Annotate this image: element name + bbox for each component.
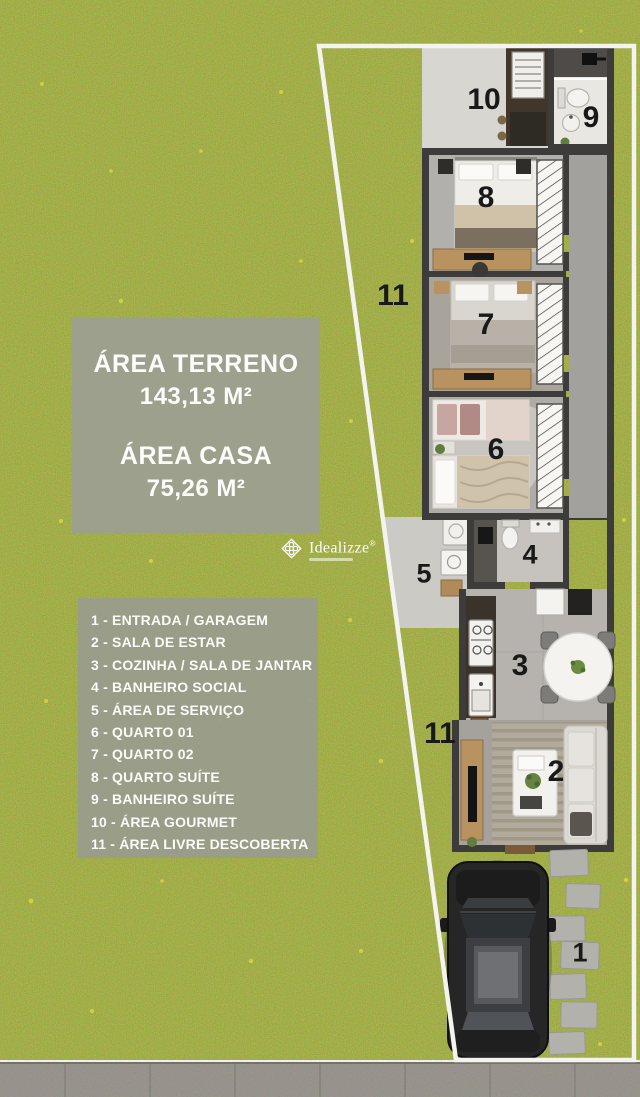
area-info-panel: ÁREA TERRENO 143,13 M² ÁREA CASA 75,26 M… — [72, 318, 320, 533]
bed-icon — [433, 456, 529, 508]
area-casa-value: 75,26 M² — [72, 472, 320, 506]
legend-item-6: 6 - QUARTO 01 — [91, 721, 310, 743]
room-label-4: 4 — [522, 542, 537, 569]
legend-item-11: 11 - ÁREA LIVRE DESCOBERTA — [91, 833, 310, 855]
wardrobe-icon — [537, 284, 563, 384]
brand-logo: Idealizze® — [279, 536, 375, 561]
laundry-cabinet-icon — [441, 580, 462, 596]
washing-machine-icon — [441, 550, 468, 575]
tv-icon — [468, 766, 477, 822]
floor-plan-poster: ÁREA TERRENO 143,13 M² ÁREA CASA 75,26 M… — [0, 0, 640, 1097]
fridge-icon — [536, 589, 564, 615]
logo-tagline — [309, 558, 353, 561]
wardrobe-icon — [537, 404, 563, 508]
sidewalk — [0, 1062, 640, 1097]
living-room — [459, 720, 607, 854]
laundry-sink-icon — [443, 518, 469, 545]
legend-item-2: 2 - SALA DE ESTAR — [91, 631, 310, 653]
legend-panel: 1 - ENTRADA / GARAGEM 2 - SALA DE ESTAR … — [78, 598, 318, 858]
bedroom-02 — [429, 277, 563, 391]
grill-icon — [512, 52, 544, 98]
room-label-5: 5 — [416, 561, 431, 588]
nightstand-icon — [434, 281, 449, 294]
area-casa-label: ÁREA CASA — [72, 440, 320, 472]
room-label-9: 9 — [583, 103, 600, 133]
gourmet-cabinet-icon — [510, 112, 546, 146]
room-label-6: 6 — [488, 435, 505, 465]
nightstand-icon — [438, 159, 453, 174]
stove-icon — [469, 620, 493, 666]
room-label-1: 1 — [572, 940, 587, 967]
area-terreno-label: ÁREA TERRENO — [72, 348, 320, 380]
legend-item-4: 4 - BANHEIRO SOCIAL — [91, 676, 310, 698]
kitchen-sink-icon — [469, 674, 493, 716]
dining-table-icon — [541, 632, 615, 703]
area-terreno-value: 143,13 M² — [72, 380, 320, 414]
bed-icon — [433, 400, 529, 440]
legend-list: 1 - ENTRADA / GARAGEM 2 - SALA DE ESTAR … — [91, 609, 310, 855]
area-label-11-bottom: 11 — [424, 719, 456, 749]
stool-icon — [498, 116, 507, 125]
tv-rack-icon — [461, 740, 483, 840]
car-icon — [440, 860, 556, 1060]
nightstand-icon — [516, 159, 531, 174]
room-label-8: 8 — [478, 183, 495, 213]
wardrobe-icon — [537, 160, 563, 264]
shower-icon — [554, 46, 607, 77]
registered-mark: ® — [369, 539, 375, 548]
sofa-icon — [564, 726, 607, 844]
legend-item-7: 7 - QUARTO 02 — [91, 743, 310, 765]
bedroom-suite — [429, 155, 563, 278]
door-mat-icon — [505, 845, 535, 854]
room-label-2: 2 — [548, 757, 565, 787]
area-label-11-top: 11 — [377, 281, 409, 311]
brand-name: Idealizze — [309, 540, 369, 557]
nightstand-icon — [517, 281, 532, 294]
room-label-10: 10 — [467, 85, 500, 115]
room-label-7: 7 — [478, 310, 495, 340]
toilet-icon — [502, 520, 519, 549]
legend-item-3: 3 - COZINHA / SALA DE JANTAR — [91, 654, 310, 676]
kitchen-cabinet-icon — [568, 589, 592, 615]
stool-icon — [498, 132, 507, 141]
round-sink-icon — [563, 115, 580, 132]
legend-item-9: 9 - BANHEIRO SUÍTE — [91, 788, 310, 810]
plant-icon — [467, 837, 477, 847]
plant-icon — [435, 444, 445, 454]
sink-icon — [530, 520, 560, 533]
corridor — [569, 155, 607, 518]
legend-item-5: 5 - ÁREA DE SERVIÇO — [91, 699, 310, 721]
desk-icon — [433, 369, 531, 389]
social-bathroom — [474, 520, 563, 582]
idealizze-logo-icon — [279, 536, 304, 561]
legend-item-1: 1 - ENTRADA / GARAGEM — [91, 609, 310, 631]
legend-item-8: 8 - QUARTO SUÍTE — [91, 766, 310, 788]
legend-item-10: 10 - ÁREA GOURMET — [91, 811, 310, 833]
room-label-3: 3 — [512, 651, 529, 681]
